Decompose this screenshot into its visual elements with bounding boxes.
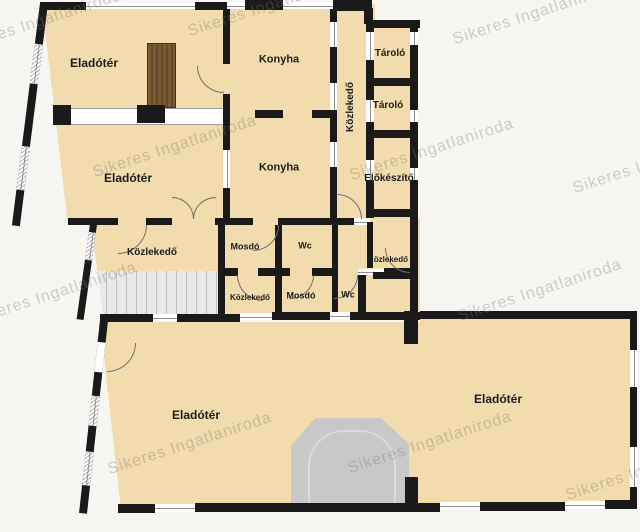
wall-segment xyxy=(366,78,418,86)
window xyxy=(565,501,605,509)
window xyxy=(82,451,94,486)
entrance-inner-outline xyxy=(308,430,396,510)
room-label-tarolo-upper: Tároló xyxy=(375,49,406,59)
window xyxy=(223,150,230,188)
wall-segment xyxy=(404,311,418,344)
counter-furniture xyxy=(147,43,176,108)
wall-segment xyxy=(146,218,172,225)
door-opening xyxy=(94,342,105,373)
window xyxy=(330,142,337,167)
wall-segment xyxy=(366,22,374,32)
wall-segment xyxy=(410,122,418,168)
entrance-vestibule xyxy=(291,416,409,508)
wall-segment xyxy=(410,180,418,315)
room-label-kozlekedo-east: Közlekedő xyxy=(368,256,408,264)
room-label-eladoter-upper-left: Eladótér xyxy=(70,57,118,69)
room-label-tarolo-lower: Tároló xyxy=(373,101,404,111)
window xyxy=(366,32,374,60)
room-label-konyha-upper: Konyha xyxy=(259,55,299,66)
room-label-kozlekedo-south: Közlekedő xyxy=(230,294,270,302)
wall-segment xyxy=(195,503,440,512)
wall-segment xyxy=(68,218,118,225)
window xyxy=(153,314,177,321)
window xyxy=(16,146,29,191)
wall-segment xyxy=(420,311,637,319)
wall-segment xyxy=(366,130,418,138)
wall-segment xyxy=(255,110,283,118)
wall-segment xyxy=(480,502,565,511)
wall-segment xyxy=(137,105,165,123)
wall-segment xyxy=(410,23,418,32)
wall-segment xyxy=(630,311,637,350)
staircase xyxy=(97,271,223,318)
wall-segment xyxy=(223,9,230,64)
watermark: Sikeres Ingatlaniroda xyxy=(571,128,640,198)
room-label-eladoter-southeast: Eladótér xyxy=(474,393,522,405)
wall-segment xyxy=(79,320,108,514)
wall-segment xyxy=(312,268,334,276)
room-label-wc-north: Wc xyxy=(298,242,312,251)
window xyxy=(86,3,195,9)
window xyxy=(410,32,418,45)
wall-segment xyxy=(223,188,230,218)
window xyxy=(30,44,43,85)
room-label-eladoter-mid-left: Eladótér xyxy=(104,172,152,184)
room-label-mosdo-north: Mosdó xyxy=(231,243,260,252)
window xyxy=(630,447,637,487)
wall-segment xyxy=(53,105,71,125)
window xyxy=(227,2,245,9)
wall-segment xyxy=(366,209,418,217)
room-label-kozlekedo-corridor: Közlekedő xyxy=(346,82,356,132)
room-label-kozlekedo-west: Közlekedő xyxy=(127,248,177,258)
window xyxy=(330,83,337,110)
room-label-mosdo-south: Mosdó xyxy=(287,292,316,301)
room-label-elokeszito: Előkészítő xyxy=(364,174,413,184)
window xyxy=(155,504,195,512)
watermark: Sikeres Ingatlaniroda xyxy=(451,0,619,49)
wall-segment xyxy=(366,122,374,160)
wall-segment xyxy=(77,224,97,320)
wall-segment xyxy=(312,110,332,118)
room-label-eladoter-southwest: Eladótér xyxy=(172,409,220,421)
wall-segment xyxy=(278,218,338,225)
wall-segment xyxy=(272,312,330,320)
window xyxy=(283,2,333,9)
wall-segment xyxy=(223,94,230,150)
wall-segment xyxy=(118,504,155,513)
room-label-wc-south: Wc xyxy=(341,291,355,300)
wall-segment xyxy=(12,3,48,226)
window xyxy=(330,22,337,47)
wall-segment xyxy=(330,9,337,22)
wall-segment xyxy=(330,167,337,218)
wall-segment xyxy=(218,268,238,276)
window xyxy=(240,313,272,320)
window xyxy=(89,396,100,427)
wall-segment xyxy=(338,218,354,225)
wall-segment xyxy=(330,47,337,83)
room-label-konyha-lower: Konyha xyxy=(259,163,299,174)
window xyxy=(330,312,350,319)
wall-segment xyxy=(630,387,637,447)
wall-segment xyxy=(100,314,153,322)
window xyxy=(440,502,480,510)
window xyxy=(630,350,637,387)
wall-segment xyxy=(373,272,410,279)
wall-segment xyxy=(605,500,637,509)
floor-plan: Eladótér Eladótér Konyha Konyha Közleked… xyxy=(0,0,640,532)
wall-segment xyxy=(245,0,283,10)
window xyxy=(410,110,418,122)
wall-segment xyxy=(177,314,240,322)
wall-segment xyxy=(358,275,366,313)
